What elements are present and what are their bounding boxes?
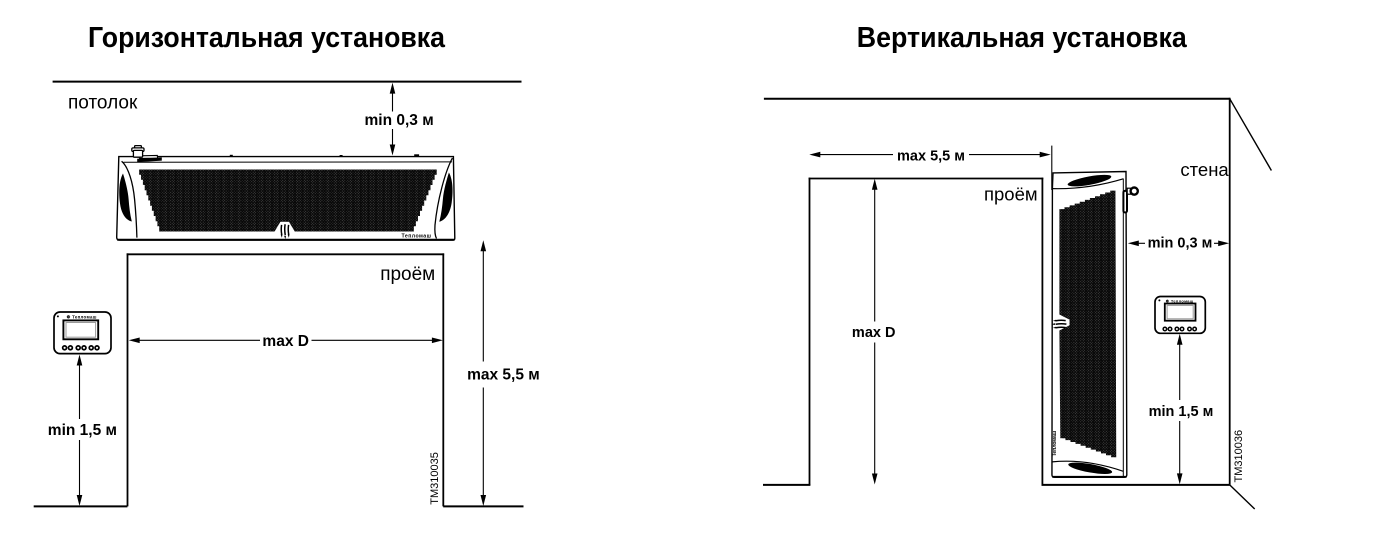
svg-text:проём: проём <box>984 183 1038 204</box>
svg-text:стена: стена <box>1180 159 1229 180</box>
svg-text:min 0,3 м: min 0,3 м <box>1148 236 1213 252</box>
svg-text:max D: max D <box>262 333 309 350</box>
svg-text:min 1,5 м: min 1,5 м <box>1149 404 1214 420</box>
svg-text:Вертикальная установка: Вертикальная установка <box>857 22 1188 54</box>
svg-text:max 5,5 м: max 5,5 м <box>467 367 540 384</box>
svg-text:max 5,5 м: max 5,5 м <box>897 148 965 164</box>
svg-text:потолок: потолок <box>68 93 138 114</box>
svg-text:ТМ310035: ТМ310035 <box>429 452 441 505</box>
svg-text:Тепломаш: Тепломаш <box>402 234 432 240</box>
svg-text:Горизонтальная установка: Горизонтальная установка <box>88 22 446 54</box>
svg-text:☸ Тепломаш: ☸ Тепломаш <box>66 315 96 320</box>
svg-text:min 0,3 м: min 0,3 м <box>365 112 434 129</box>
svg-text:min 1,5 м: min 1,5 м <box>48 422 117 439</box>
svg-text:проём: проём <box>380 264 435 285</box>
svg-text:Тепломаш: Тепломаш <box>1052 430 1058 456</box>
svg-text:ТМ310036: ТМ310036 <box>1233 430 1245 483</box>
svg-text:max D: max D <box>852 325 896 341</box>
